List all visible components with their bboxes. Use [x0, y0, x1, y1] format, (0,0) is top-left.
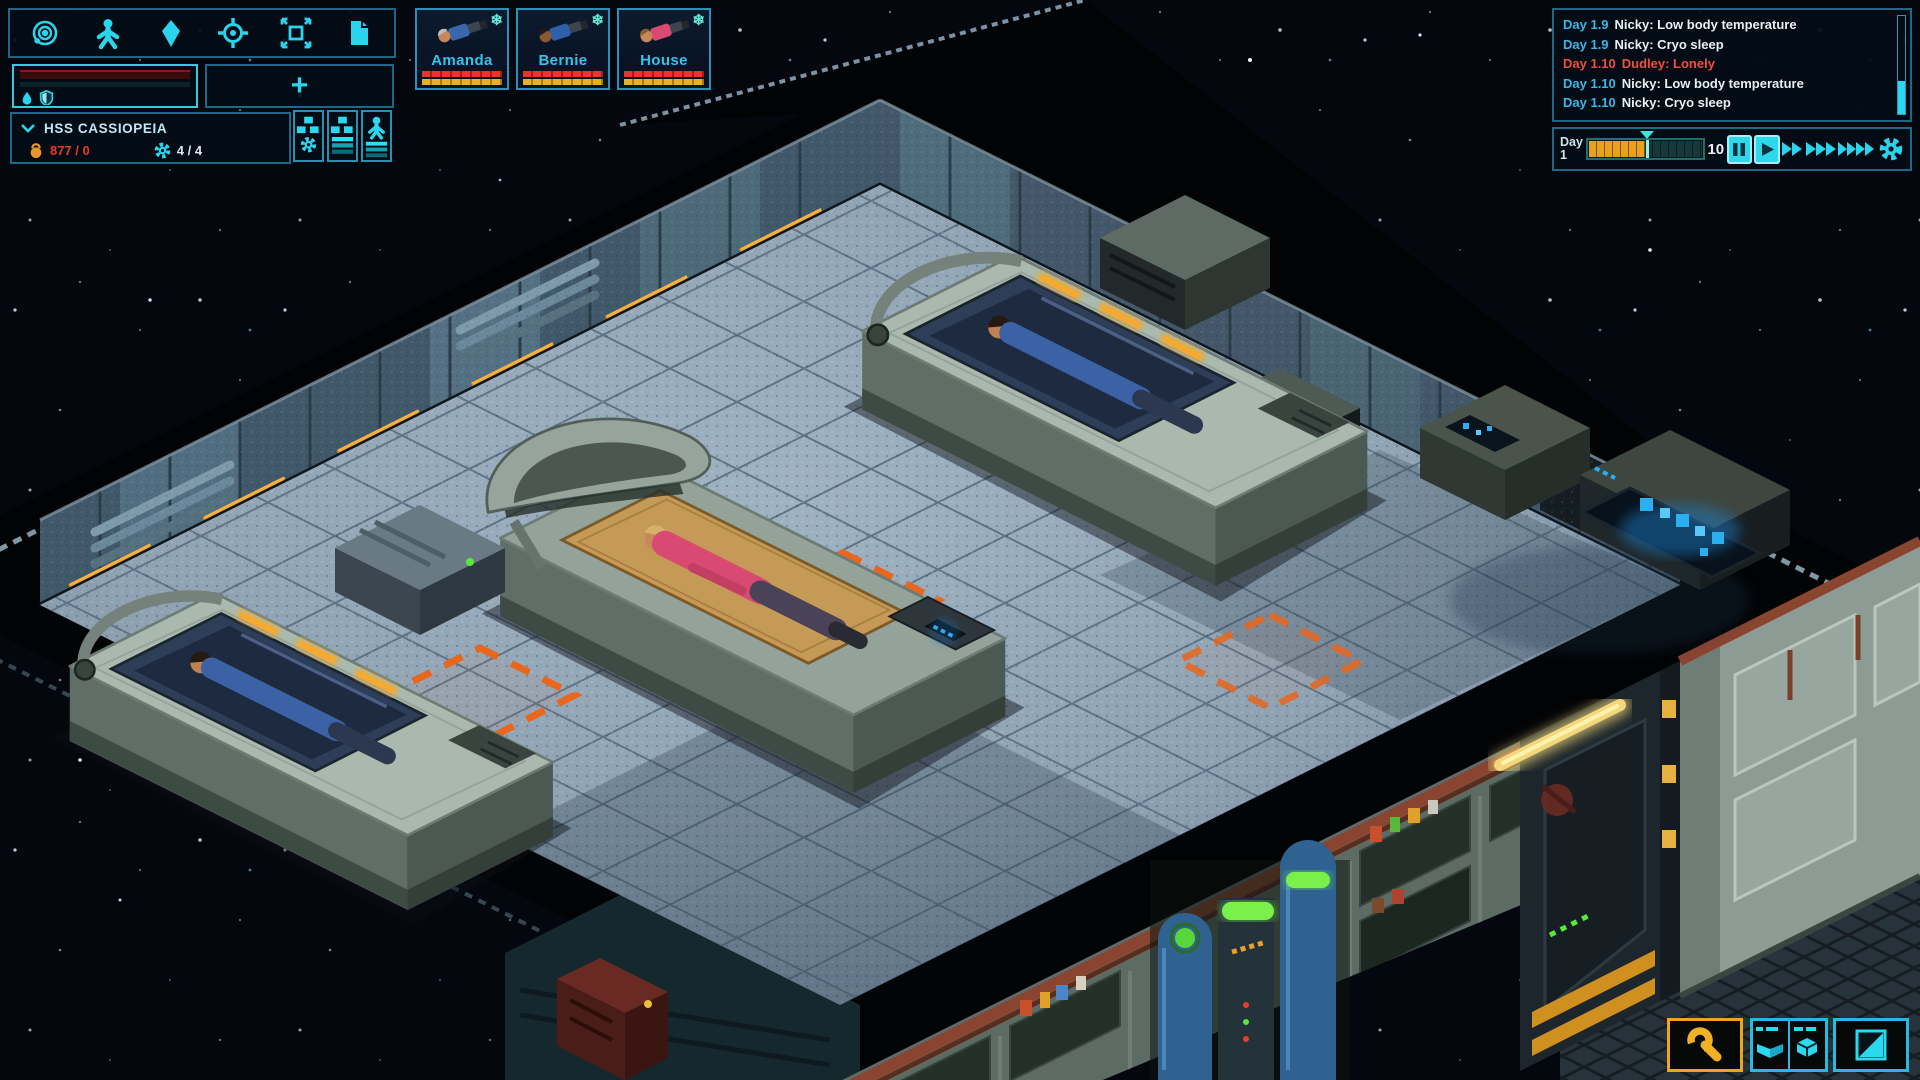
crew-sprite [633, 14, 693, 50]
weight-icon [28, 142, 44, 158]
time-marker-icon [1640, 131, 1654, 139]
diagonal-square-icon [1851, 1025, 1891, 1065]
resource-icon[interactable] [148, 13, 194, 53]
speed4-button[interactable] [1838, 134, 1876, 164]
ship-name: HSS CASSIOPEIA [44, 121, 167, 136]
log-scrollbar[interactable] [1897, 15, 1906, 115]
system-view-icon[interactable] [22, 13, 68, 53]
crew-status-bars [422, 71, 502, 85]
droplet-icon [20, 91, 34, 105]
ship-systems: 4 / 4 [177, 143, 202, 158]
log-entry-alert[interactable]: Day 1.10Dudley: Lonely [1563, 54, 1894, 74]
ship-storage-button[interactable] [327, 110, 358, 162]
crew-card-amanda[interactable]: ❄ Amanda [415, 8, 509, 90]
hull-bar [20, 70, 190, 79]
hour-display: 10 [1707, 141, 1724, 158]
cryo-sleep-icon: ❄ [591, 11, 604, 29]
ship-mass: 877 / 0 [50, 143, 90, 158]
time-controls: Day1 10 [1552, 127, 1912, 171]
life-support-machine[interactable] [1150, 840, 1350, 1080]
day-display: Day1 [1560, 136, 1584, 162]
crew-card-bernie[interactable]: ❄ Bernie [516, 8, 610, 90]
crew-status-bars [624, 71, 704, 85]
target-icon[interactable] [210, 13, 256, 53]
event-log: Day 1.9Nicky: Low body temperature Day 1… [1552, 8, 1912, 122]
crew-name: Amanda [417, 52, 507, 69]
crew-name: Bernie [518, 52, 608, 69]
ship-header[interactable]: HSS CASSIOPEIA [20, 117, 281, 139]
cryo-sleep-icon: ❄ [490, 11, 503, 29]
chevron-down-icon [20, 122, 36, 134]
ship-panel: HSS CASSIOPEIA 877 / 0 4 / 4 [10, 112, 291, 164]
wall-cutaway-button[interactable] [1833, 1018, 1909, 1072]
view-mode-button[interactable] [1750, 1018, 1828, 1072]
gear-icon [154, 142, 171, 159]
cryo-sleep-icon: ❄ [692, 11, 705, 29]
crew-icon[interactable] [85, 13, 131, 53]
add-ship-button[interactable]: + [205, 64, 394, 108]
ship-facilities-button[interactable] [293, 110, 324, 162]
crew-card-house[interactable]: ❄ House [617, 8, 711, 90]
log-entry[interactable]: Day 1.10Nicky: Cryo sleep [1563, 93, 1894, 113]
log-entry[interactable]: Day 1.9Nicky: Low body temperature [1563, 15, 1894, 35]
game-window: + HSS CASSIOPEIA 877 / 0 4 / 4 [0, 0, 1920, 1080]
log-entry[interactable]: Day 1.9Nicky: Cryo sleep [1563, 35, 1894, 55]
crew-status-bars [523, 71, 603, 85]
crew-sprite [532, 14, 592, 50]
speed2-button[interactable] [1782, 134, 1804, 164]
pause-button[interactable] [1727, 135, 1753, 164]
shield-bar [20, 82, 190, 87]
log-entry[interactable]: Day 1.10Nicky: Low body temperature [1563, 74, 1894, 94]
crew-name: House [619, 52, 709, 69]
crew-sprite [431, 14, 491, 50]
build-mode-button[interactable] [1667, 1018, 1743, 1072]
settings-gear-icon[interactable] [1878, 134, 1904, 164]
add-ship-label: + [291, 71, 309, 101]
wrench-icon [1684, 1024, 1726, 1066]
time-cursor [1646, 140, 1649, 158]
file-icon[interactable] [336, 13, 382, 53]
hull-meter[interactable] [12, 64, 198, 108]
main-toolbar [8, 8, 396, 58]
day-progress-bar [1586, 138, 1705, 160]
play-button[interactable] [1754, 135, 1780, 164]
open-box-icon [1753, 1023, 1788, 1067]
cube-icon [1790, 1023, 1825, 1067]
expand-icon[interactable] [273, 13, 319, 53]
shield-icon [39, 90, 54, 105]
speed3-button[interactable] [1806, 134, 1836, 164]
ship-crew-button[interactable] [361, 110, 392, 162]
